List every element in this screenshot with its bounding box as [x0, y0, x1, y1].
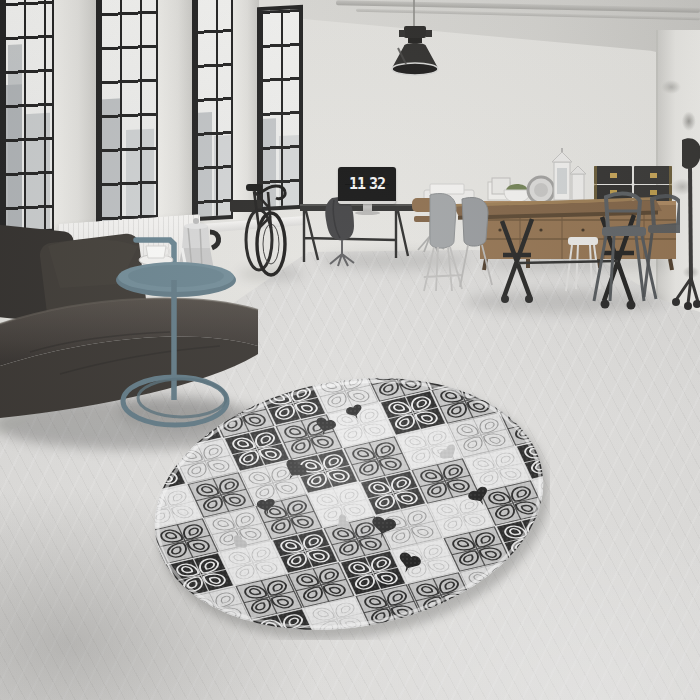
lamp-pole	[690, 168, 691, 280]
rug-tile	[484, 372, 550, 411]
rug-tile	[148, 633, 214, 640]
rug-tile	[476, 595, 542, 639]
lamp-top-unit	[404, 26, 426, 38]
room-scene: 1132	[0, 0, 700, 700]
rug-tile	[528, 583, 550, 627]
dining-area	[410, 185, 680, 320]
lamp-rim	[392, 63, 438, 75]
window-mullions	[96, 0, 160, 228]
bike-saddle	[246, 184, 262, 191]
lamp-head	[682, 138, 700, 169]
table-base-spiral	[138, 379, 226, 417]
desk-legs	[304, 211, 408, 262]
industrial-pendant-lamp	[386, 0, 446, 84]
teal-side-table	[112, 218, 252, 436]
wall-pillar	[158, 0, 194, 228]
flip-clock-split-line	[345, 184, 389, 185]
window-mullions	[0, 0, 56, 235]
lamp-caster	[672, 298, 680, 306]
lamp-fin	[399, 30, 405, 37]
lamp-caster	[693, 300, 700, 308]
moka-handle	[210, 232, 219, 248]
rug-tile	[148, 599, 198, 640]
monitor-base	[355, 211, 380, 215]
rug-tile	[148, 497, 150, 541]
lamp-neck	[408, 38, 422, 43]
tripod-floor-lamp	[668, 120, 700, 315]
eames-chair	[460, 198, 492, 287]
flip-clock: 1132	[343, 173, 391, 195]
lamp-fin	[426, 30, 432, 37]
bike-handlebar	[258, 186, 285, 199]
wall-pillar	[54, 0, 98, 240]
rug-tile	[468, 372, 534, 377]
lamp-caster	[684, 302, 692, 310]
window-1	[0, 0, 56, 235]
window-2	[96, 0, 160, 228]
white-chair	[566, 237, 600, 291]
rug-tile	[548, 503, 550, 547]
office-chair-base	[330, 240, 354, 266]
eames-chair	[424, 194, 462, 291]
